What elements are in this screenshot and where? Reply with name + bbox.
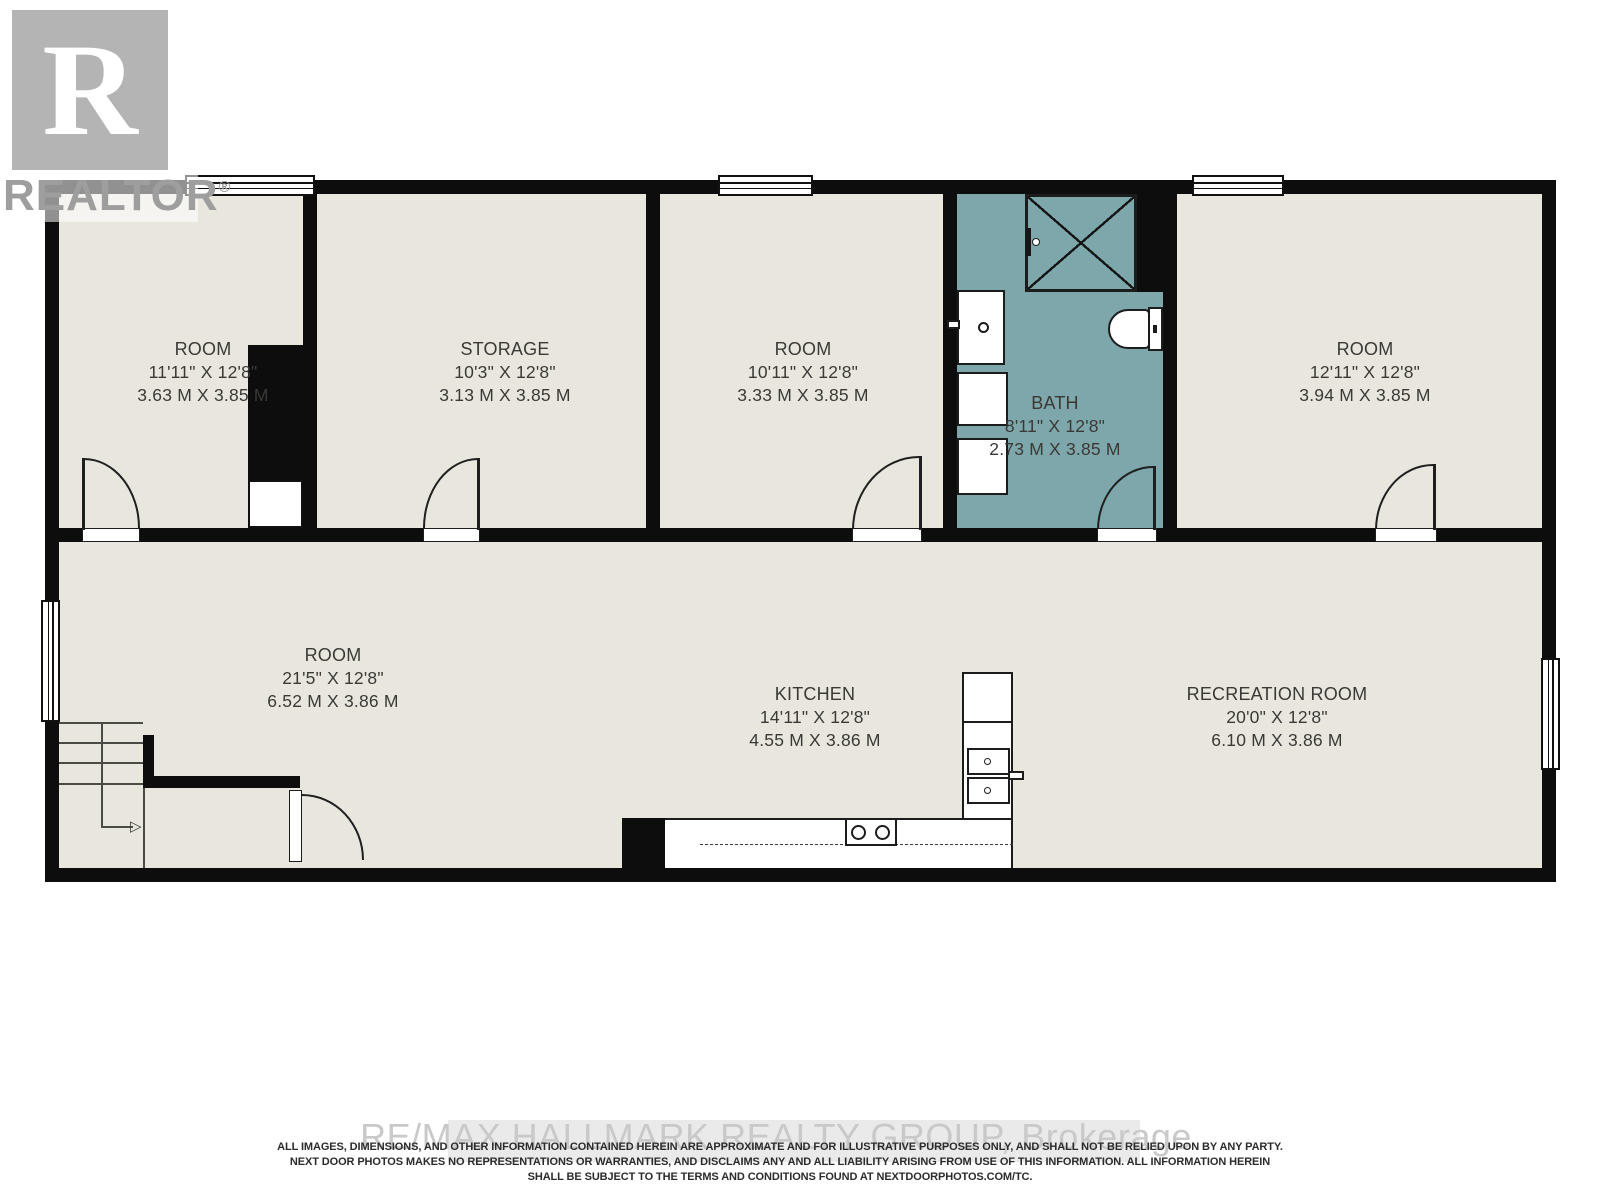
disclaimer-text: ALL IMAGES, DIMENSIONS, AND OTHER INFORM… <box>0 1140 1560 1185</box>
sink-handle-icon <box>1008 771 1024 780</box>
registered-mark-icon: ® <box>219 179 232 196</box>
disclaimer-line-3: SHALL BE SUBJECT TO THE TERMS AND CONDIT… <box>0 1170 1560 1185</box>
realtor-logo-letter: R <box>42 24 137 156</box>
room-dims-metric: 2.73 M X 3.85 M <box>955 438 1155 461</box>
window-mullion <box>52 602 54 720</box>
room-dims-metric: 6.10 M X 3.86 M <box>1117 729 1437 752</box>
window-mullion <box>1552 660 1554 768</box>
kitchen-counter-bottom <box>665 818 1013 868</box>
label-room1: ROOM 11'11" X 12'8" 3.63 M X 3.85 M <box>103 338 303 407</box>
sink-knob-icon <box>984 758 991 765</box>
sink-drain-icon <box>978 322 989 333</box>
door-gap-bath <box>1097 528 1157 542</box>
stair-direction-arrow-icon: ▷ <box>130 819 142 834</box>
disclaimer-line-2: NEXT DOOR PHOTOS MAKES NO REPRESENTATION… <box>0 1155 1560 1170</box>
wall-room2-bath <box>943 194 957 542</box>
room-dims-imperial: 8'11" X 12'8" <box>955 415 1155 438</box>
stair-wall-horizontal <box>143 776 300 788</box>
door-gap-room3 <box>1375 528 1437 542</box>
window-mullion <box>720 188 811 190</box>
room-name: BATH <box>955 392 1155 415</box>
door-leaf-closet <box>289 790 302 862</box>
room-dims-metric: 3.94 M X 3.85 M <box>1265 384 1465 407</box>
room-dims-imperial: 14'11" X 12'8" <box>695 706 935 729</box>
shower-valve-icon <box>1026 228 1031 256</box>
room-dims-imperial: 11'11" X 12'8" <box>103 361 303 384</box>
label-recreation-room: RECREATION ROOM 20'0" X 12'8" 6.10 M X 3… <box>1117 683 1437 752</box>
room-dims-imperial: 20'0" X 12'8" <box>1117 706 1437 729</box>
stair-run-line <box>101 826 133 828</box>
stove-burner-icon <box>851 825 866 840</box>
shower-knob-icon <box>1032 238 1040 246</box>
wall-room1-storage <box>303 194 317 542</box>
room-name: KITCHEN <box>695 683 935 706</box>
stair-center-line <box>101 722 103 827</box>
window-mullion <box>1194 188 1282 190</box>
room-name: ROOM <box>213 644 453 667</box>
toilet-button-icon <box>1153 325 1157 333</box>
window-mullion <box>720 182 811 184</box>
room-name: ROOM <box>703 338 903 361</box>
window-room2 <box>718 175 813 196</box>
realtor-label-text: REALTOR <box>3 171 219 220</box>
label-room3: ROOM 12'11" X 12'8" 3.94 M X 3.85 M <box>1265 338 1465 407</box>
disclaimer-line-1: ALL IMAGES, DIMENSIONS, AND OTHER INFORM… <box>0 1140 1560 1155</box>
label-room-lower-left: ROOM 21'5" X 12'8" 6.52 M X 3.86 M <box>213 644 453 713</box>
room-dims-imperial: 10'11" X 12'8" <box>703 361 903 384</box>
room-dims-metric: 6.52 M X 3.86 M <box>213 690 453 713</box>
window-mullion <box>1548 660 1550 768</box>
kitchen-wall-stub <box>622 818 665 868</box>
chimney-niche <box>248 480 303 528</box>
room-dims-metric: 3.63 M X 3.85 M <box>103 384 303 407</box>
room-name: RECREATION ROOM <box>1117 683 1437 706</box>
wall-storage-room2 <box>646 194 660 542</box>
room-dims-metric: 4.55 M X 3.86 M <box>695 729 935 752</box>
shower-icon <box>1025 194 1137 292</box>
label-bath: BATH 8'11" X 12'8" 2.73 M X 3.85 M <box>955 392 1155 461</box>
room-name: STORAGE <box>405 338 605 361</box>
room-name: ROOM <box>103 338 303 361</box>
window-left-room <box>41 600 60 722</box>
window-recreation <box>1541 658 1560 770</box>
wall-top-bottom-divider <box>59 528 1542 542</box>
sink-faucet-icon <box>947 320 960 329</box>
label-room2: ROOM 10'11" X 12'8" 3.33 M X 3.85 M <box>703 338 903 407</box>
floor-plan-page: ▷ ROOM 11'11" X 12'8" 3.63 M X 3.85 M ST… <box>0 0 1600 1200</box>
realtor-logo-icon: R <box>12 10 168 170</box>
room-dims-imperial: 21'5" X 12'8" <box>213 667 453 690</box>
room-dims-imperial: 12'11" X 12'8" <box>1265 361 1465 384</box>
door-leaf-room1 <box>82 458 85 530</box>
door-leaf-storage <box>477 458 480 530</box>
label-storage: STORAGE 10'3" X 12'8" 3.13 M X 3.85 M <box>405 338 605 407</box>
room-name: ROOM <box>1265 338 1465 361</box>
window-room3 <box>1192 175 1284 196</box>
wall-bath-room3 <box>1163 194 1177 542</box>
door-leaf-room3 <box>1433 464 1436 530</box>
window-mullion <box>48 602 50 720</box>
door-gap-room1 <box>82 528 140 542</box>
room-dims-metric: 3.13 M X 3.85 M <box>405 384 605 407</box>
sink-knob-icon <box>984 787 991 794</box>
room-dims-imperial: 10'3" X 12'8" <box>405 361 605 384</box>
closet-boundary-line <box>143 788 145 868</box>
toilet-bowl-icon <box>1108 309 1150 349</box>
door-leaf-room2 <box>919 456 922 530</box>
realtor-label: REALTOR® <box>3 174 231 218</box>
window-mullion <box>1194 182 1282 184</box>
fridge-icon <box>962 672 1013 723</box>
door-gap-storage <box>423 528 480 542</box>
door-gap-room2 <box>852 528 922 542</box>
shower-side-fill <box>1137 194 1163 292</box>
label-kitchen: KITCHEN 14'11" X 12'8" 4.55 M X 3.86 M <box>695 683 935 752</box>
room-dims-metric: 3.33 M X 3.85 M <box>703 384 903 407</box>
stove-burner-icon <box>875 825 890 840</box>
door-leaf-bath <box>1153 466 1156 530</box>
